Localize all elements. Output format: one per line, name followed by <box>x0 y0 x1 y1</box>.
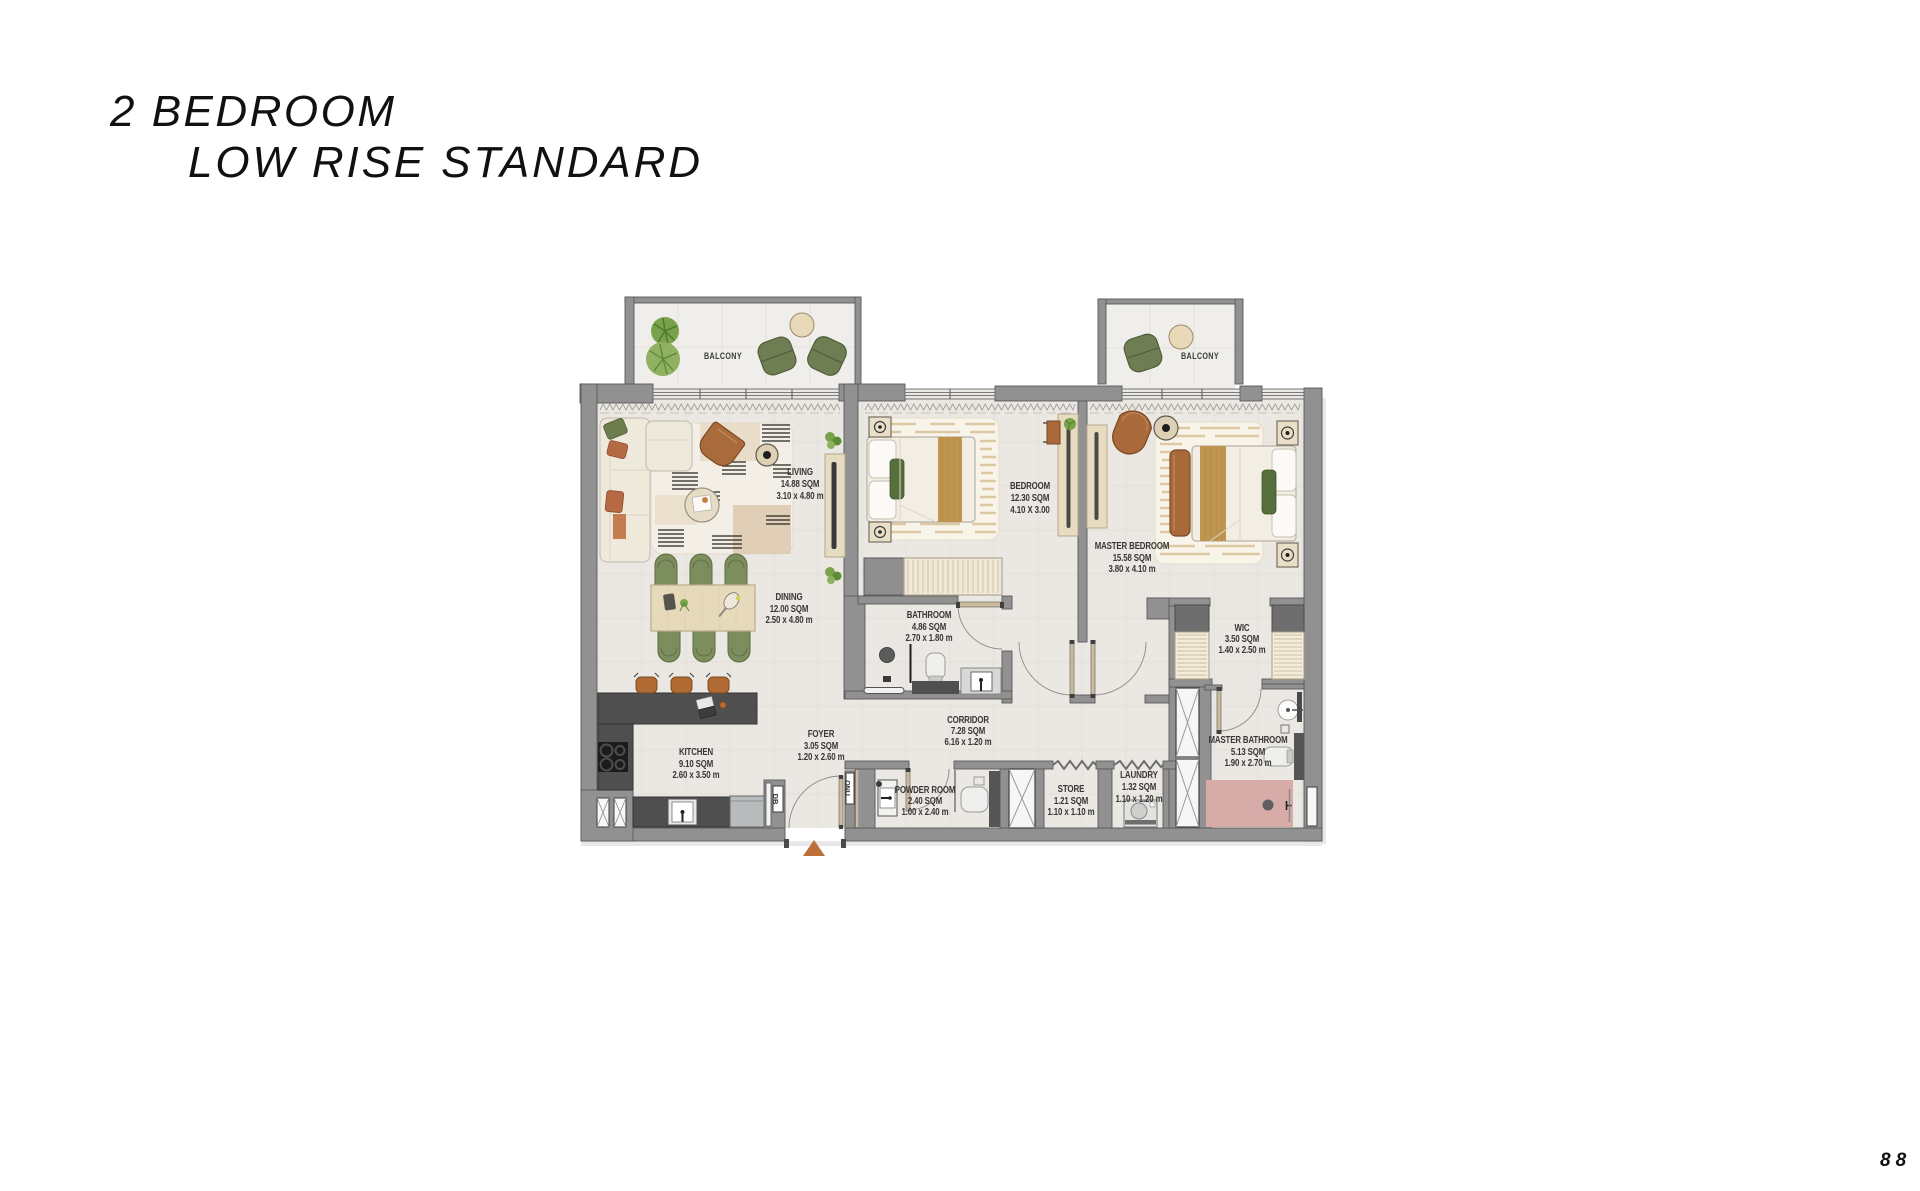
svg-text:STORE: STORE <box>1058 784 1085 795</box>
svg-text:MASTER BATHROOM: MASTER BATHROOM <box>1209 735 1288 746</box>
svg-text:1.00 x 2.40 m: 1.00 x 2.40 m <box>901 807 948 818</box>
svg-text:1.90 x 2.70 m: 1.90 x 2.70 m <box>1224 758 1271 769</box>
svg-text:5.13 SQM: 5.13 SQM <box>1231 747 1265 758</box>
svg-text:DB: DB <box>771 794 780 805</box>
svg-text:1.32 SQM: 1.32 SQM <box>1122 782 1156 793</box>
svg-text:CORRIDOR: CORRIDOR <box>947 715 989 726</box>
svg-text:BALCONY: BALCONY <box>1181 351 1219 361</box>
svg-text:12.00 SQM: 12.00 SQM <box>770 604 809 615</box>
svg-text:4.10 X 3.00: 4.10 X 3.00 <box>1010 505 1050 516</box>
svg-text:LAUNDRY: LAUNDRY <box>1120 770 1158 781</box>
svg-text:3.50 SQM: 3.50 SQM <box>1225 634 1259 645</box>
svg-text:LOW RISE STANDARD: LOW RISE STANDARD <box>188 138 701 187</box>
svg-text:1.21 SQM: 1.21 SQM <box>1054 796 1088 807</box>
svg-text:2.70 x 1.80 m: 2.70 x 1.80 m <box>905 633 952 644</box>
svg-text:LIVING: LIVING <box>787 467 813 478</box>
svg-text:1.40 x 2.50 m: 1.40 x 2.50 m <box>1218 645 1265 656</box>
svg-text:4.86 SQM: 4.86 SQM <box>912 622 946 633</box>
svg-text:3.80 x 4.10 m: 3.80 x 4.10 m <box>1108 564 1155 575</box>
svg-text:1.10 x 1.20 m: 1.10 x 1.20 m <box>1115 794 1162 805</box>
svg-text:DINING: DINING <box>775 592 803 603</box>
svg-text:POWDER ROOM: POWDER ROOM <box>895 785 956 796</box>
svg-text:88: 88 <box>1880 1150 1911 1171</box>
svg-text:3.10 x 4.80 m: 3.10 x 4.80 m <box>776 491 823 502</box>
svg-text:KITCHEN: KITCHEN <box>679 747 713 758</box>
svg-text:12.30 SQM: 12.30 SQM <box>1011 493 1050 504</box>
svg-text:7.28 SQM: 7.28 SQM <box>951 726 985 737</box>
svg-text:3.05 SQM: 3.05 SQM <box>804 741 838 752</box>
svg-text:1.20 x 2.60 m: 1.20 x 2.60 m <box>797 752 844 763</box>
svg-text:1.10 x 1.10 m: 1.10 x 1.10 m <box>1047 807 1094 818</box>
svg-text:6.16 x 1.20 m: 6.16 x 1.20 m <box>944 737 991 748</box>
svg-text:9.10 SQM: 9.10 SQM <box>679 759 713 770</box>
svg-text:WIC: WIC <box>1235 623 1250 634</box>
svg-text:2.60 x 3.50 m: 2.60 x 3.50 m <box>672 770 719 781</box>
svg-text:14.88 SQM: 14.88 SQM <box>781 479 820 490</box>
svg-text:BALCONY: BALCONY <box>704 351 742 361</box>
svg-text:MASTER BEDROOM: MASTER BEDROOM <box>1095 541 1170 552</box>
svg-text:2 BEDROOM: 2 BEDROOM <box>109 87 395 136</box>
svg-text:15.58 SQM: 15.58 SQM <box>1113 553 1152 564</box>
svg-text:2.50 x 4.80 m: 2.50 x 4.80 m <box>765 615 812 626</box>
svg-text:FOYER: FOYER <box>808 729 835 740</box>
svg-text:BEDROOM: BEDROOM <box>1010 481 1050 492</box>
svg-text:BATHROOM: BATHROOM <box>907 610 952 621</box>
svg-text:ONU: ONU <box>843 780 850 796</box>
svg-text:2.40 SQM: 2.40 SQM <box>908 796 942 807</box>
